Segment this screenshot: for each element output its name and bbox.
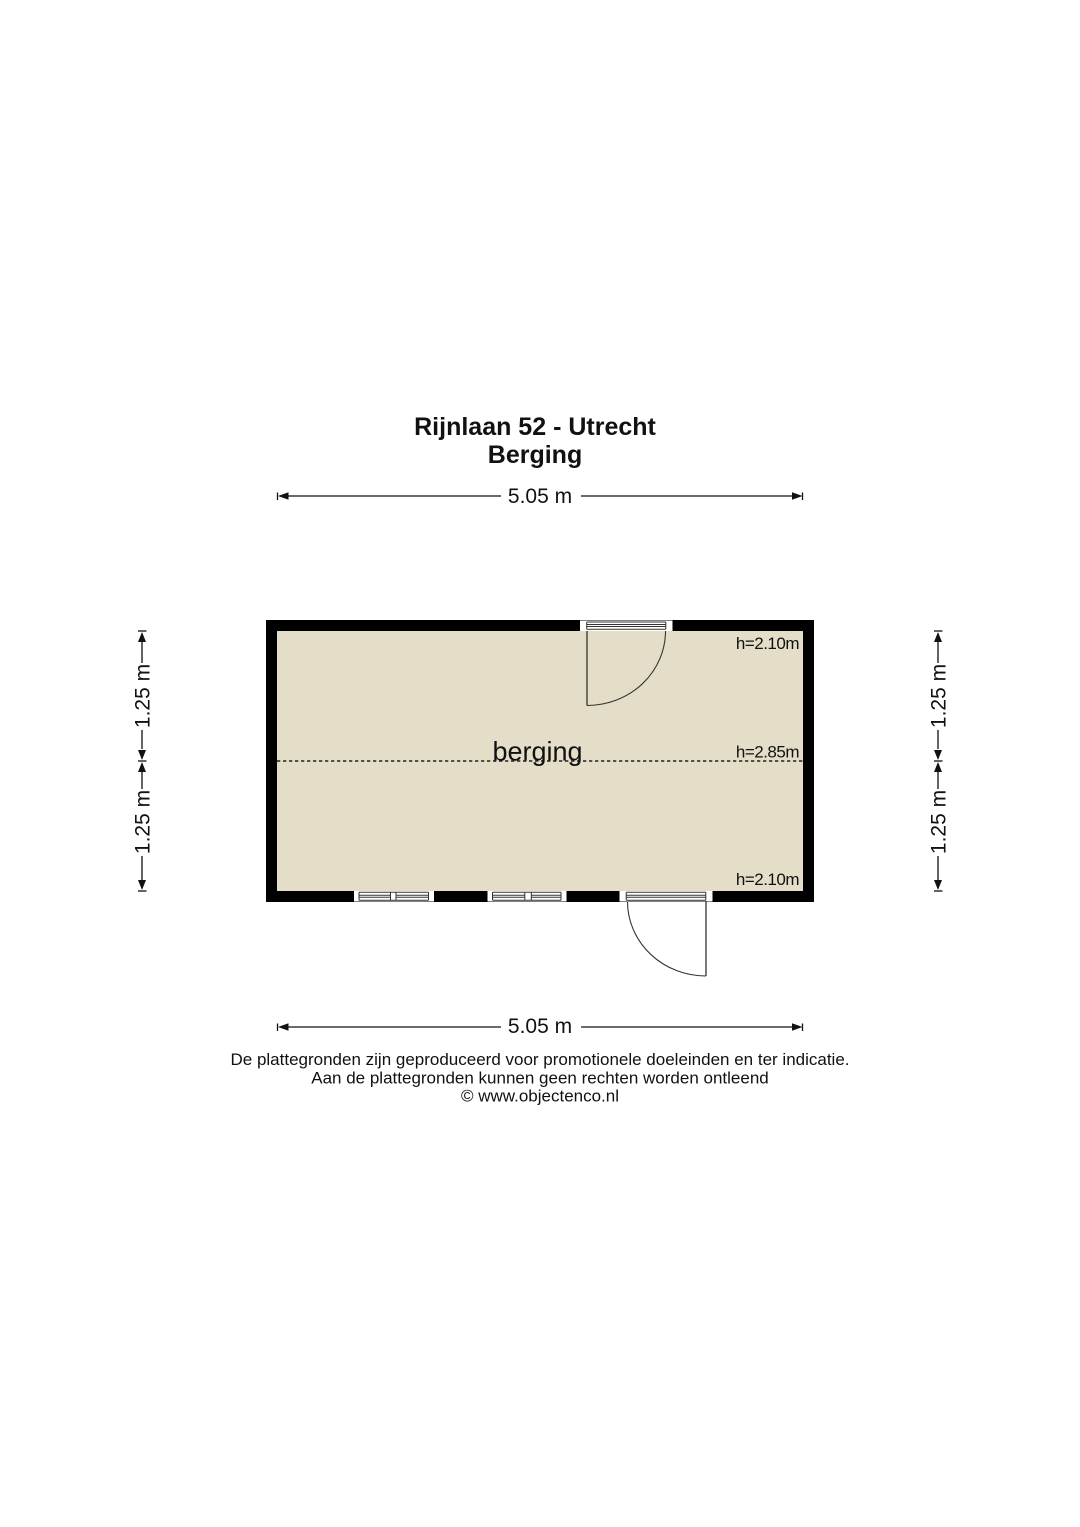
svg-text:Berging: Berging [488, 441, 582, 469]
svg-text:h=2.10m: h=2.10m [736, 870, 799, 889]
svg-text:Rijnlaan 52 - Utrecht: Rijnlaan 52 - Utrecht [414, 413, 656, 441]
svg-text:berging: berging [492, 737, 582, 767]
svg-text:1.25 m: 1.25 m [928, 664, 951, 728]
svg-text:h=2.85m: h=2.85m [736, 743, 799, 762]
svg-text:1.25 m: 1.25 m [928, 790, 951, 854]
svg-text:Aan de plattegronden kunnen ge: Aan de plattegronden kunnen geen rechten… [311, 1069, 768, 1088]
svg-text:1.25 m: 1.25 m [132, 664, 155, 728]
svg-text:5.05 m: 5.05 m [508, 485, 572, 508]
svg-text:h=2.10m: h=2.10m [736, 634, 799, 653]
svg-text:De plattegronden zijn geproduc: De plattegronden zijn geproduceerd voor … [230, 1050, 849, 1069]
svg-text:5.05 m: 5.05 m [508, 1015, 572, 1038]
svg-text:1.25 m: 1.25 m [132, 790, 155, 854]
svg-text:© www.objectenco.nl: © www.objectenco.nl [461, 1087, 619, 1106]
